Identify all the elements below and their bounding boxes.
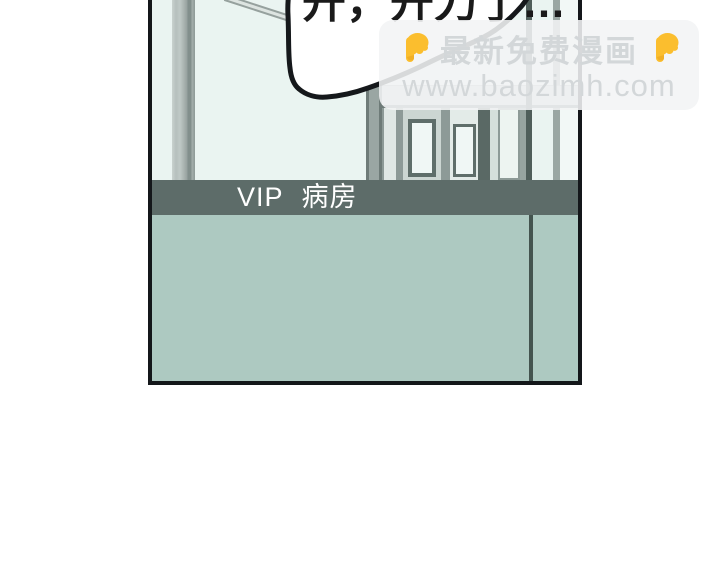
sign-vip-label: VIP <box>237 182 284 212</box>
door-left <box>403 108 441 180</box>
pointing-down-emoji-right <box>646 30 682 66</box>
left-pillar <box>172 0 195 180</box>
pointing-down-emoji-left <box>396 30 432 66</box>
watermark-url: www.baozimh.com <box>402 68 675 104</box>
door-right-window <box>453 124 476 177</box>
dark-door-stile <box>478 108 490 180</box>
comic-page: VIP病房 开，开刀了… 最新免费漫画 <box>0 0 720 563</box>
door-right <box>450 108 478 180</box>
door-frame-stile <box>396 108 403 180</box>
watermark-title: 最新免费漫画 <box>440 26 638 71</box>
side-panel <box>382 108 396 180</box>
watermark-overlay: 最新免费漫画 www.baozimh.com <box>379 20 699 110</box>
vip-ward-sign: VIP病房 <box>152 180 578 215</box>
lower-wall <box>152 215 578 381</box>
watermark-title-row: 最新免费漫画 <box>396 26 682 70</box>
glass-door-leaf <box>498 108 520 180</box>
glass-door-wall <box>382 108 526 180</box>
dark-post-lower <box>529 215 533 381</box>
glass-pane <box>490 108 498 180</box>
sign-ward-label: 病房 <box>302 182 358 212</box>
door-left-window <box>408 119 436 177</box>
door-frame-stile <box>441 108 450 180</box>
